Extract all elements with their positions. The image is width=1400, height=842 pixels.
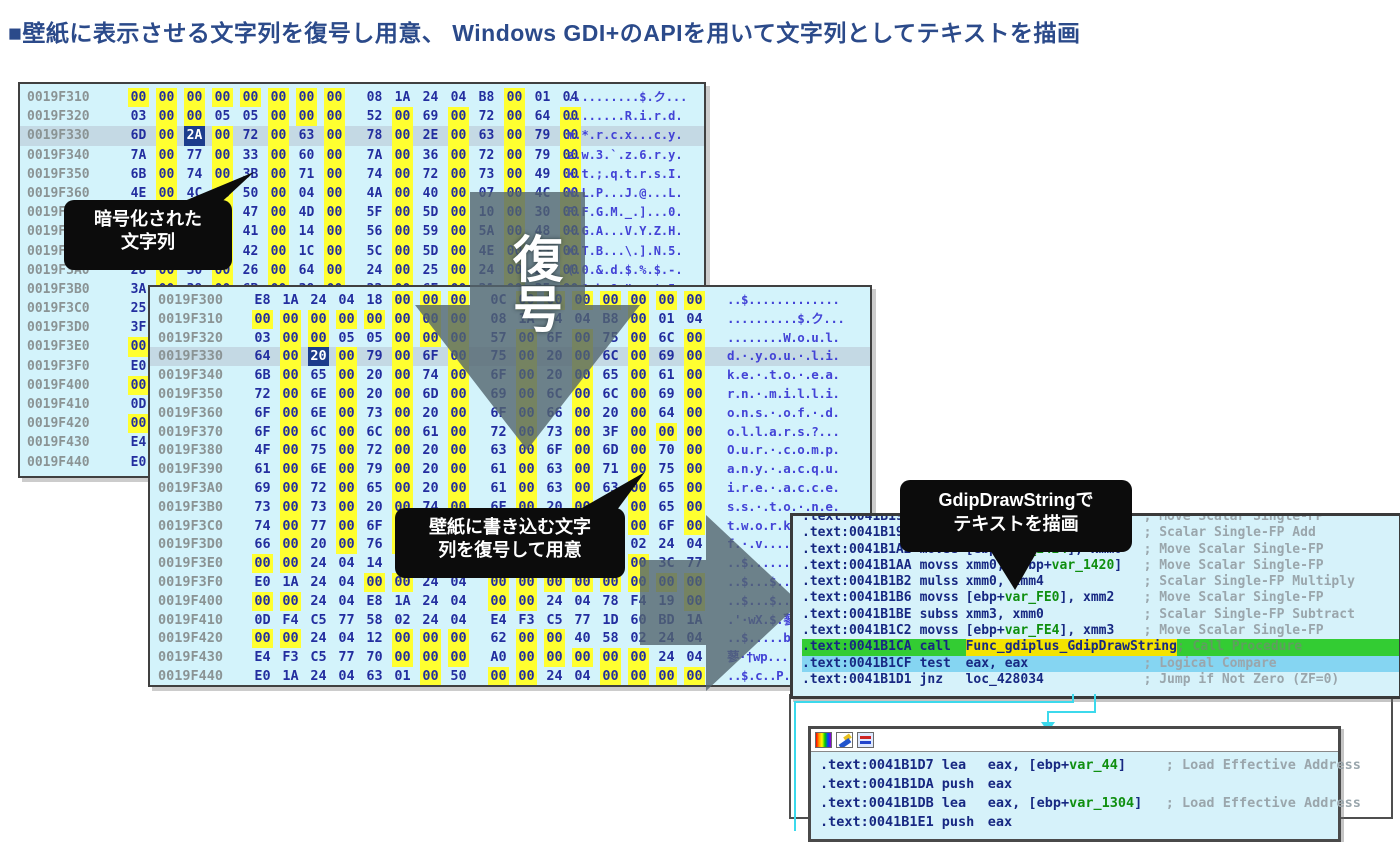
hex-byte[interactable]: 00	[392, 366, 413, 385]
hex-byte[interactable]: 36	[420, 146, 441, 165]
hex-byte[interactable]: 1A	[280, 291, 301, 310]
hex-byte[interactable]: 00	[684, 441, 705, 460]
hex-byte[interactable]: 70	[364, 648, 385, 667]
hex-byte[interactable]: 64	[296, 261, 317, 280]
hex-byte[interactable]: 00	[392, 261, 413, 280]
hex-byte[interactable]: 74	[184, 165, 205, 184]
hex-byte[interactable]: 00	[280, 535, 301, 554]
hex-byte[interactable]: 00	[280, 441, 301, 460]
hex-byte[interactable]: 1A	[392, 592, 413, 611]
hex-byte[interactable]: 00	[392, 329, 413, 348]
hex-byte[interactable]: 00	[684, 423, 705, 442]
hex-byte[interactable]: 00	[280, 517, 301, 536]
hex-byte[interactable]: 20	[364, 385, 385, 404]
hex-byte[interactable]: 6F	[364, 517, 385, 536]
hex-byte[interactable]: 02	[392, 611, 413, 630]
hex-byte[interactable]: 00	[392, 648, 413, 667]
hex-byte[interactable]: 60	[296, 146, 317, 165]
hex-byte[interactable]: 64	[656, 404, 677, 423]
asm-line[interactable]: .text:0041B1B2mulssxmm0, xmm4; Scalar Si…	[802, 574, 1399, 590]
hex-byte[interactable]: 00	[544, 629, 565, 648]
hex-byte[interactable]: 00	[544, 648, 565, 667]
hex-byte[interactable]: 73	[476, 165, 497, 184]
hex-byte[interactable]: E0	[252, 573, 273, 592]
hex-byte[interactable]: 00	[392, 404, 413, 423]
hex-byte[interactable]: E8	[252, 291, 273, 310]
hex-byte[interactable]: 6C	[308, 423, 329, 442]
hex-byte[interactable]: 49	[532, 165, 553, 184]
hex-byte[interactable]: 73	[252, 498, 273, 517]
hex-byte[interactable]: 00	[268, 146, 289, 165]
hex-byte[interactable]: 00	[488, 592, 509, 611]
hex-byte[interactable]: F3	[516, 611, 537, 630]
hex-byte[interactable]: 77	[308, 517, 329, 536]
pencil-icon[interactable]	[836, 732, 853, 748]
hex-byte[interactable]: 58	[600, 629, 621, 648]
hex-byte[interactable]: 00	[324, 242, 345, 261]
hex-byte[interactable]: 00	[656, 291, 677, 310]
hex-byte[interactable]: 4A	[364, 184, 385, 203]
hex-byte[interactable]: 73	[308, 498, 329, 517]
hex-byte[interactable]: 72	[420, 165, 441, 184]
hex-byte[interactable]: 03	[128, 107, 149, 126]
hex-byte[interactable]: 00	[392, 184, 413, 203]
hex-byte[interactable]: 04	[336, 629, 357, 648]
hex-byte[interactable]: 05	[364, 329, 385, 348]
hex-byte[interactable]: 20	[364, 498, 385, 517]
hex-byte[interactable]: 00	[516, 648, 537, 667]
hex-byte[interactable]: 77	[336, 648, 357, 667]
hex-byte[interactable]: 20	[420, 460, 441, 479]
hex-byte[interactable]: 00	[280, 460, 301, 479]
hex-byte[interactable]: 00	[392, 165, 413, 184]
hex-byte[interactable]: 24	[308, 573, 329, 592]
hex-byte[interactable]: 63	[544, 479, 565, 498]
hex-byte[interactable]: 00	[280, 385, 301, 404]
hex-byte[interactable]: 00	[504, 88, 525, 107]
hex-byte[interactable]: 00	[628, 498, 649, 517]
hex-byte[interactable]: 00	[336, 517, 357, 536]
hex-byte[interactable]: 00	[392, 629, 413, 648]
hex-byte[interactable]: 24	[308, 667, 329, 686]
hex-byte[interactable]: 00	[392, 441, 413, 460]
hex-byte[interactable]: 6C	[656, 329, 677, 348]
hex-byte[interactable]: 3F	[128, 318, 149, 337]
hex-byte[interactable]: 72	[308, 479, 329, 498]
hex-byte[interactable]: 76	[364, 535, 385, 554]
hex-byte[interactable]: C5	[544, 611, 565, 630]
hex-byte[interactable]: 00	[516, 667, 537, 686]
hex-byte[interactable]: 0D	[128, 395, 149, 414]
hex-byte[interactable]: 6E	[308, 460, 329, 479]
hex-byte[interactable]: 77	[572, 611, 593, 630]
hex-byte[interactable]: 00	[448, 126, 469, 145]
hex-byte[interactable]: 00	[280, 310, 301, 329]
hex-byte[interactable]: 00	[324, 165, 345, 184]
hex-byte[interactable]: 62	[488, 629, 509, 648]
hex-byte[interactable]: 04	[448, 88, 469, 107]
hex-byte[interactable]: 24	[420, 88, 441, 107]
hex-byte[interactable]: 00	[268, 261, 289, 280]
hex-byte[interactable]: B8	[476, 88, 497, 107]
hex-byte[interactable]: 69	[656, 385, 677, 404]
hex-byte[interactable]: 04	[336, 291, 357, 310]
hex-byte[interactable]: 50	[240, 184, 261, 203]
hex-byte[interactable]: 1C	[296, 242, 317, 261]
hex-byte[interactable]: 00	[392, 146, 413, 165]
hex-byte[interactable]: 00	[684, 498, 705, 517]
hex-byte[interactable]: 00	[252, 592, 273, 611]
hex-byte[interactable]: 24	[420, 592, 441, 611]
asm-line[interactable]: .text:0041B1B6movss[ebp+var_FE0], xmm2; …	[802, 590, 1399, 606]
hex-byte[interactable]: 00	[324, 88, 345, 107]
hex-byte[interactable]: 79	[364, 460, 385, 479]
hex-byte[interactable]: 00	[156, 146, 177, 165]
hex-byte[interactable]: 5F	[364, 203, 385, 222]
hex-byte[interactable]: 00	[280, 404, 301, 423]
hex-byte[interactable]: 00	[600, 648, 621, 667]
hex-byte[interactable]: 4F	[252, 441, 273, 460]
hex-byte[interactable]: 71	[600, 460, 621, 479]
hex-byte[interactable]: 00	[336, 479, 357, 498]
hex-byte[interactable]: 00	[572, 479, 593, 498]
hex-byte[interactable]: 00	[684, 366, 705, 385]
asm-line[interactable]: .text:0041B1D1jnzloc_428034; Jump if Not…	[802, 672, 1399, 688]
hex-byte[interactable]: 00	[336, 347, 357, 366]
hex-byte[interactable]: 1A	[280, 667, 301, 686]
hex-byte[interactable]: 79	[532, 126, 553, 145]
hex-byte[interactable]: 04	[296, 184, 317, 203]
hex-byte[interactable]: 00	[268, 126, 289, 145]
palette-icon[interactable]	[815, 732, 832, 748]
hex-byte[interactable]: 00	[392, 126, 413, 145]
hex-byte[interactable]: 00	[336, 385, 357, 404]
hex-byte[interactable]: 00	[420, 648, 441, 667]
hex-byte[interactable]: 00	[268, 242, 289, 261]
hex-byte[interactable]: 24	[308, 554, 329, 573]
hex-byte[interactable]: 0D	[252, 611, 273, 630]
hex-byte[interactable]: 00	[324, 146, 345, 165]
hex-byte[interactable]: 61	[656, 366, 677, 385]
hex-byte[interactable]: 74	[252, 517, 273, 536]
hex-byte[interactable]: 63	[364, 667, 385, 686]
hex-byte[interactable]: 50	[448, 667, 469, 686]
hex-byte[interactable]: 00	[156, 126, 177, 145]
hex-byte[interactable]: 7A	[128, 146, 149, 165]
hex-byte[interactable]: 20	[420, 479, 441, 498]
hex-byte[interactable]: 00	[212, 146, 233, 165]
hex-byte[interactable]: 00	[684, 347, 705, 366]
hex-byte[interactable]: 6E	[308, 404, 329, 423]
hex-byte[interactable]: 6B	[128, 165, 149, 184]
hex-byte[interactable]: 00	[268, 184, 289, 203]
hex-byte[interactable]: 75	[308, 441, 329, 460]
hex-byte[interactable]: 00	[268, 203, 289, 222]
hex-byte[interactable]: 24	[544, 667, 565, 686]
hex-byte[interactable]: E0	[128, 453, 149, 472]
hex-byte[interactable]: 6F	[252, 423, 273, 442]
hex-byte[interactable]: 00	[420, 667, 441, 686]
hex-byte[interactable]: 00	[504, 165, 525, 184]
hex-byte[interactable]: 00	[336, 498, 357, 517]
hex-byte[interactable]: 14	[296, 222, 317, 241]
hex-byte[interactable]: 72	[364, 441, 385, 460]
hex-byte[interactable]: E0	[252, 667, 273, 686]
hex-byte[interactable]: 00	[336, 310, 357, 329]
hex-byte[interactable]: 00	[600, 667, 621, 686]
hex-byte[interactable]: 00	[280, 498, 301, 517]
hex-byte[interactable]: 00	[516, 479, 537, 498]
hex-byte[interactable]: 04	[684, 310, 705, 329]
hex-byte[interactable]: 04	[448, 611, 469, 630]
hex-byte[interactable]: 69	[252, 479, 273, 498]
hex-byte[interactable]: 25	[128, 299, 149, 318]
hex-byte[interactable]: 00	[684, 460, 705, 479]
hex-byte[interactable]: 00	[336, 366, 357, 385]
hex-byte[interactable]: 64	[252, 347, 273, 366]
hex-byte[interactable]: 00	[324, 107, 345, 126]
hex-byte[interactable]: 00	[392, 222, 413, 241]
hex-byte[interactable]: 00	[324, 126, 345, 145]
hex-byte[interactable]: 69	[656, 347, 677, 366]
hex-byte[interactable]: 00	[308, 310, 329, 329]
hex-byte[interactable]: 00	[128, 414, 149, 433]
hex-byte[interactable]: 00	[572, 648, 593, 667]
hex-byte[interactable]: 40	[572, 629, 593, 648]
hex-byte[interactable]: 00	[280, 329, 301, 348]
hex-byte[interactable]: 00	[392, 479, 413, 498]
hex-byte[interactable]: 00	[392, 347, 413, 366]
hex-byte[interactable]: 64	[532, 107, 553, 126]
hex-byte[interactable]: E4	[252, 648, 273, 667]
hex-byte[interactable]: 00	[684, 479, 705, 498]
hex-byte[interactable]: 00	[268, 107, 289, 126]
hex-byte[interactable]: 12	[364, 629, 385, 648]
hex-byte[interactable]: 00	[184, 107, 205, 126]
hex-byte[interactable]: A0	[488, 648, 509, 667]
hex-byte[interactable]: 00	[212, 165, 233, 184]
hex-byte[interactable]: 00	[336, 423, 357, 442]
hex-byte[interactable]: 00	[296, 107, 317, 126]
hex-byte[interactable]: E4	[488, 611, 509, 630]
hex-byte[interactable]: 00	[156, 165, 177, 184]
hex-byte[interactable]: 79	[364, 347, 385, 366]
hex-byte[interactable]: 05	[240, 107, 261, 126]
hex-byte[interactable]: 03	[252, 329, 273, 348]
hex-byte[interactable]: 00	[308, 329, 329, 348]
hex-byte[interactable]: 00	[280, 479, 301, 498]
hex-byte[interactable]: 00	[516, 460, 537, 479]
hex-byte[interactable]: 65	[364, 479, 385, 498]
hex-byte[interactable]: 00	[504, 126, 525, 145]
hex-byte[interactable]: 00	[516, 592, 537, 611]
hex-byte[interactable]: 20	[308, 347, 329, 366]
hex-byte[interactable]: 00	[448, 107, 469, 126]
hex-byte[interactable]: 2A	[184, 126, 205, 145]
hex-byte[interactable]: 00	[656, 423, 677, 442]
hex-byte[interactable]: 05	[336, 329, 357, 348]
hex-byte[interactable]: 75	[656, 460, 677, 479]
hex-byte[interactable]: 00	[684, 291, 705, 310]
hex-byte[interactable]: 24	[308, 629, 329, 648]
asm-line[interactable]: .text:0041B1BEsubssxmm3, xmm0; Scalar Si…	[802, 607, 1399, 623]
hex-byte[interactable]: E8	[364, 592, 385, 611]
hex-byte[interactable]: 08	[364, 88, 385, 107]
hex-byte[interactable]: 00	[280, 347, 301, 366]
hex-byte[interactable]: 00	[156, 88, 177, 107]
hex-byte[interactable]: F3	[280, 648, 301, 667]
hex-byte[interactable]: 20	[308, 535, 329, 554]
hex-byte[interactable]: 00	[392, 107, 413, 126]
hex-byte[interactable]: 00	[448, 648, 469, 667]
hex-byte[interactable]: 79	[532, 146, 553, 165]
hex-byte[interactable]: 00	[212, 88, 233, 107]
hex-byte[interactable]: F4	[280, 611, 301, 630]
hex-byte[interactable]: 00	[336, 404, 357, 423]
hex-byte[interactable]: 00	[364, 573, 385, 592]
hex-byte[interactable]: 00	[392, 423, 413, 442]
hex-byte[interactable]: 63	[476, 126, 497, 145]
hex-byte[interactable]: 78	[364, 126, 385, 145]
hex-byte[interactable]: 71	[296, 165, 317, 184]
hex-byte[interactable]: 18	[364, 291, 385, 310]
hex-byte[interactable]: 00	[268, 222, 289, 241]
hex-byte[interactable]: E0	[128, 357, 149, 376]
hex-byte[interactable]: 00	[488, 667, 509, 686]
asm-line[interactable]: .text:0041B1DApusheax	[820, 775, 1338, 794]
hex-byte[interactable]: 14	[364, 554, 385, 573]
hex-byte[interactable]: 00	[324, 222, 345, 241]
hex-byte[interactable]: 00	[336, 441, 357, 460]
hex-byte[interactable]: 00	[392, 385, 413, 404]
asm-line[interactable]: .text:0041B1CAcallFunc_gdiplus_GdipDrawS…	[802, 639, 1399, 655]
hex-byte[interactable]: C5	[308, 648, 329, 667]
hex-byte[interactable]: 00	[392, 310, 413, 329]
hex-byte[interactable]: 00	[212, 126, 233, 145]
hex-byte[interactable]: 00	[128, 376, 149, 395]
hex-byte[interactable]: 00	[324, 184, 345, 203]
hex-byte[interactable]: 00	[156, 107, 177, 126]
asm-line[interactable]: .text:0041B1AAmovssxmm0, [ebp+var_1420];…	[802, 558, 1399, 574]
hex-byte[interactable]: 66	[252, 535, 273, 554]
hex-byte[interactable]: 63	[296, 126, 317, 145]
hex-byte[interactable]: 00	[392, 203, 413, 222]
hex-byte[interactable]: 4D	[296, 203, 317, 222]
hex-byte[interactable]: 74	[364, 165, 385, 184]
hex-byte[interactable]: 61	[488, 460, 509, 479]
hex-byte[interactable]: 6F	[252, 404, 273, 423]
hex-byte[interactable]: 72	[240, 126, 261, 145]
hex-byte[interactable]: 5C	[364, 242, 385, 261]
hex-byte[interactable]: 04	[336, 592, 357, 611]
hex-byte[interactable]: 24	[308, 291, 329, 310]
hex-byte[interactable]: 00	[280, 554, 301, 573]
hex-byte[interactable]: 7A	[364, 146, 385, 165]
hex-byte[interactable]: 00	[336, 460, 357, 479]
hex-byte[interactable]: 63	[544, 460, 565, 479]
hex-byte[interactable]: 00	[268, 88, 289, 107]
hex-byte[interactable]: 2E	[420, 126, 441, 145]
hex-byte[interactable]: 00	[364, 310, 385, 329]
hex-byte[interactable]: 01	[532, 88, 553, 107]
hex-byte[interactable]: E4	[128, 433, 149, 452]
hex-byte[interactable]: 00	[252, 554, 273, 573]
hex-byte[interactable]: 04	[572, 592, 593, 611]
hex-byte[interactable]: 00	[392, 242, 413, 261]
hex-byte[interactable]: 3A	[128, 280, 149, 299]
hex-byte[interactable]: 00	[420, 629, 441, 648]
hex-byte[interactable]: 65	[308, 366, 329, 385]
hex-byte[interactable]: 00	[504, 146, 525, 165]
hex-byte[interactable]: 00	[324, 261, 345, 280]
hex-byte[interactable]: C5	[308, 611, 329, 630]
hex-byte[interactable]: 00	[684, 385, 705, 404]
hex-byte[interactable]: 00	[448, 629, 469, 648]
hex-byte[interactable]: 42	[240, 242, 261, 261]
hex-byte[interactable]: 00	[324, 203, 345, 222]
hex-byte[interactable]: 00	[128, 337, 149, 356]
hex-byte[interactable]: 04	[448, 592, 469, 611]
hex-byte[interactable]: 01	[656, 310, 677, 329]
hex-byte[interactable]: 70	[656, 441, 677, 460]
asm-line[interactable]: .text:0041B1C2movss[ebp+var_FE4], xmm3; …	[802, 623, 1399, 639]
hex-byte[interactable]: 00	[128, 88, 149, 107]
hex-byte[interactable]: 33	[240, 146, 261, 165]
hex-byte[interactable]: 6E	[308, 385, 329, 404]
hex-byte[interactable]: 00	[684, 329, 705, 348]
hex-byte[interactable]: 1D	[600, 611, 621, 630]
hex-byte[interactable]: 24	[544, 592, 565, 611]
segments-icon[interactable]	[857, 732, 874, 748]
hex-byte[interactable]: 47	[240, 203, 261, 222]
hex-byte[interactable]: 69	[420, 107, 441, 126]
hex-byte[interactable]: 77	[184, 146, 205, 165]
hex-byte[interactable]: 04	[336, 554, 357, 573]
hex-byte[interactable]: 00	[280, 592, 301, 611]
asm-line[interactable]: .text:0041B1DBleaeax, [ebp+var_1304]; Lo…	[820, 794, 1338, 813]
hex-byte[interactable]: 00	[280, 366, 301, 385]
hex-byte[interactable]: 73	[364, 404, 385, 423]
hex-byte[interactable]: 1A	[280, 573, 301, 592]
hex-byte[interactable]: 1A	[392, 88, 413, 107]
hex-byte[interactable]: 00	[684, 404, 705, 423]
hex-byte[interactable]: 24	[420, 611, 441, 630]
hex-byte[interactable]: 05	[212, 107, 233, 126]
hex-byte[interactable]: 00	[392, 291, 413, 310]
hex-byte[interactable]: 00	[240, 88, 261, 107]
hex-byte[interactable]: 00	[448, 460, 469, 479]
hex-byte[interactable]: 00	[392, 460, 413, 479]
hex-byte[interactable]: 65	[656, 479, 677, 498]
hex-byte[interactable]: 00	[184, 88, 205, 107]
asm-line[interactable]: .text:0041B1E1pusheax	[820, 813, 1338, 832]
hex-byte[interactable]: 00	[448, 479, 469, 498]
hex-byte[interactable]: 00	[572, 460, 593, 479]
hex-byte[interactable]: 00	[504, 107, 525, 126]
hex-byte[interactable]: 04	[336, 573, 357, 592]
hex-byte[interactable]: 00	[252, 629, 273, 648]
hex-byte[interactable]: 24	[364, 261, 385, 280]
hex-byte[interactable]: 01	[392, 667, 413, 686]
hex-byte[interactable]: 04	[572, 667, 593, 686]
hex-byte[interactable]: 00	[252, 310, 273, 329]
hex-byte[interactable]: 58	[364, 611, 385, 630]
hex-byte[interactable]: 00	[280, 629, 301, 648]
hex-byte[interactable]: 56	[364, 222, 385, 241]
hex-byte[interactable]: 77	[336, 611, 357, 630]
hex-byte[interactable]: 20	[364, 366, 385, 385]
hex-byte[interactable]: 00	[336, 535, 357, 554]
